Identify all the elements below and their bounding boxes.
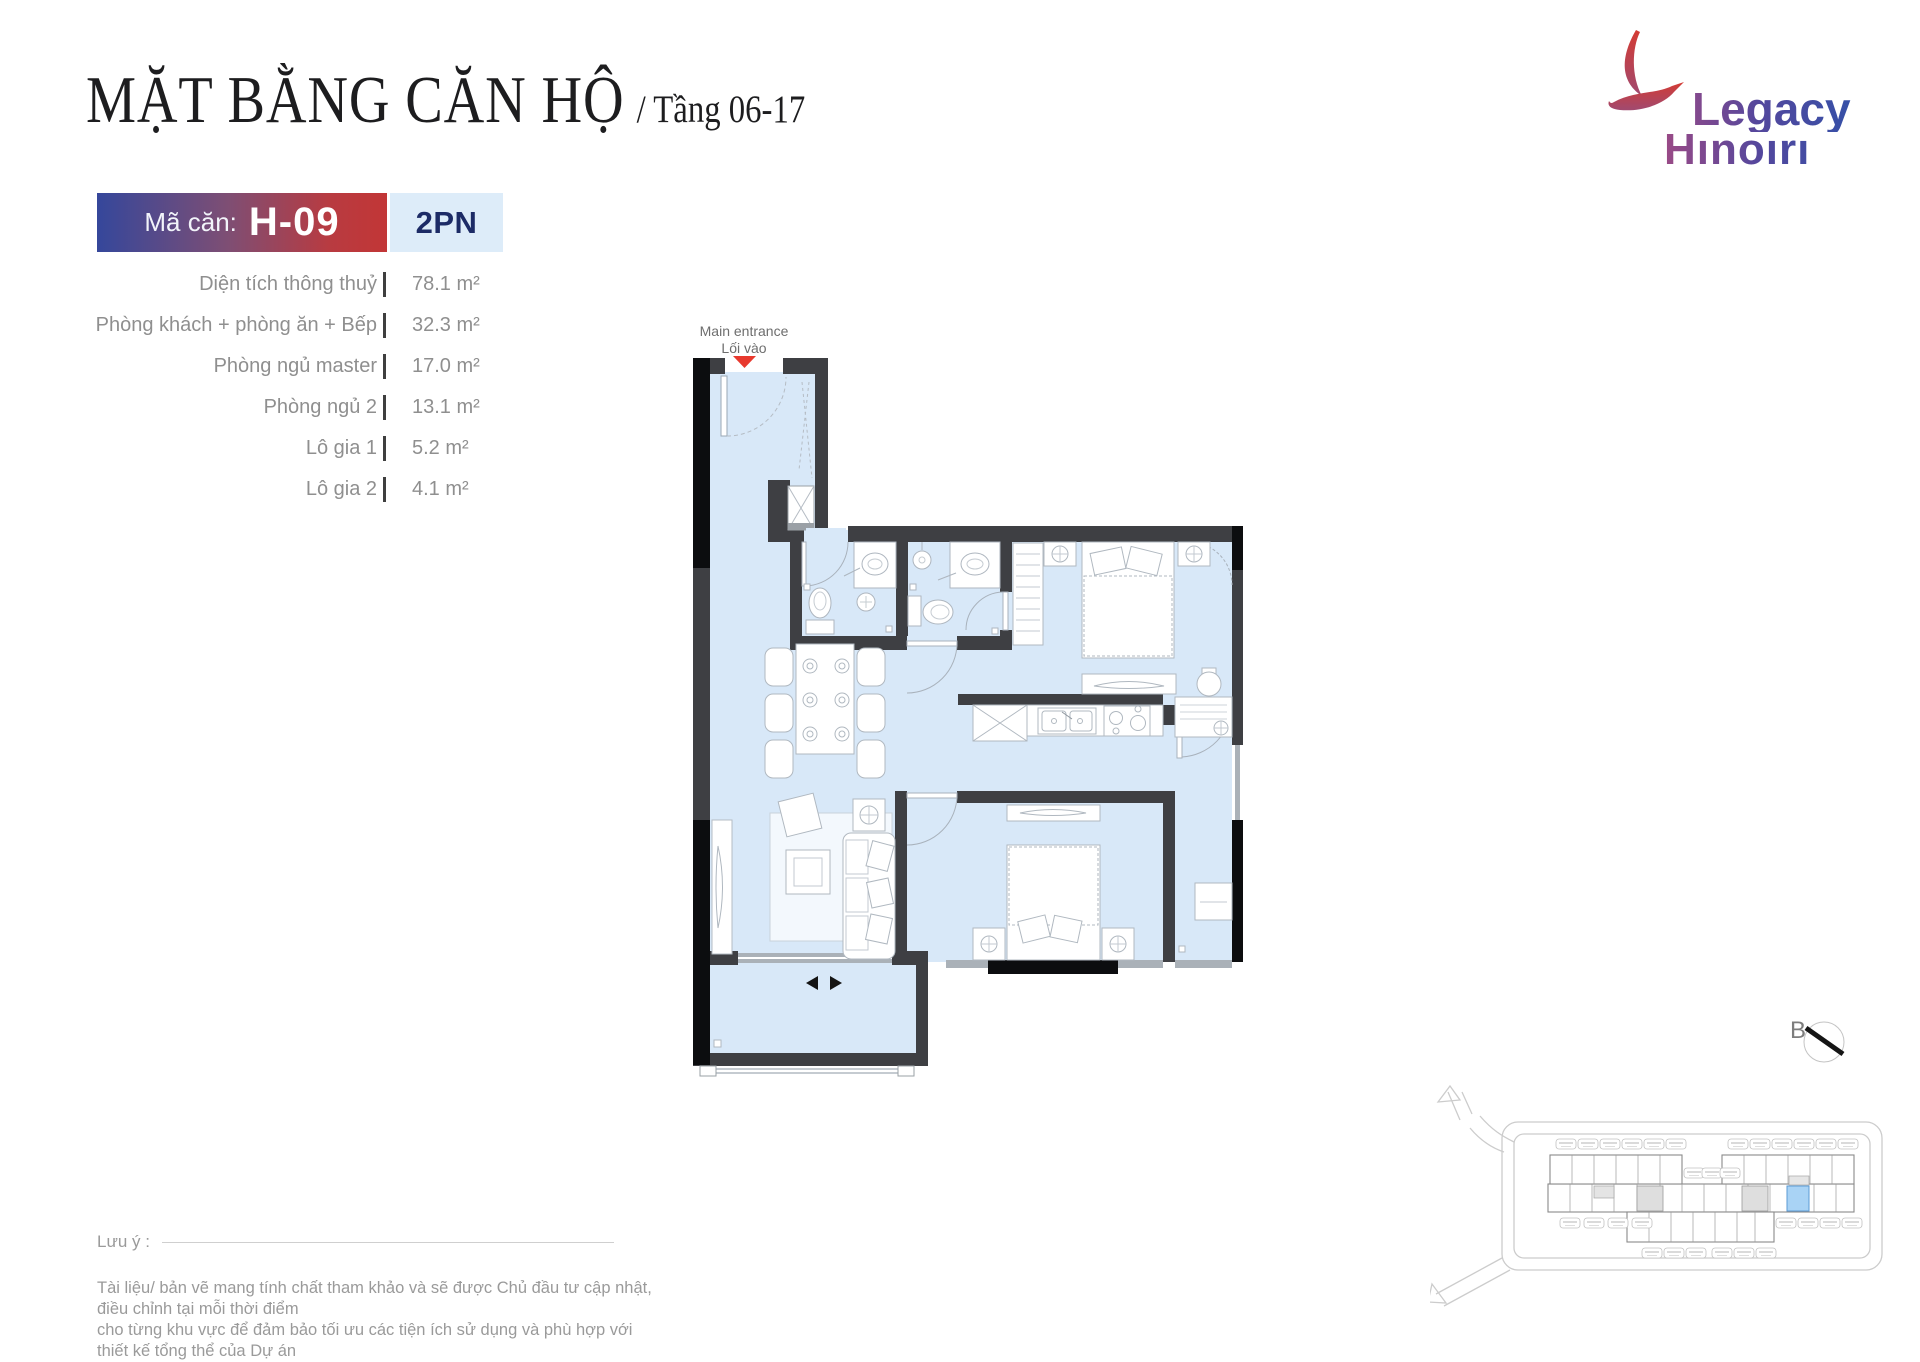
technical-shaft [788, 486, 814, 530]
highlighted-unit [1787, 1186, 1809, 1211]
spec-label: Phòng khách + phòng ăn + Bếp [0, 314, 377, 337]
spec-value: 5.2 m² [386, 437, 469, 460]
spec-value: 78.1 m² [386, 273, 480, 296]
title-text: MẶT BẰNG CĂN HỘ [86, 63, 624, 137]
spec-value: 17.0 m² [386, 355, 480, 378]
compass-needle [1806, 1028, 1843, 1054]
unit-type-badge: 2PN [390, 193, 503, 252]
spec-label: Lô gia 2 [0, 478, 377, 501]
unit-code-value: H-09 [249, 200, 340, 245]
spec-row: Lô gia 24.1 m² [0, 469, 520, 510]
spec-value: 4.1 m² [386, 478, 469, 501]
disclaimer: Tài liệu/ bản vẽ mang tính chất tham khả… [97, 1278, 657, 1362]
spec-row: Phòng khách + phòng ăn + Bếp32.3 m² [0, 305, 520, 346]
note-divider-line [162, 1242, 614, 1243]
entrance-label-vi: Lối vào [721, 340, 766, 356]
floor-plan-page: { "header": { "title": "MẶT BẰNG CĂN HỘ"… [0, 0, 1920, 1357]
unit-badge: Mã căn: H-09 2PN [97, 193, 503, 252]
spec-row: Phòng ngủ 213.1 m² [0, 387, 520, 428]
disclaimer-line2: cho từng khu vực để đảm bảo tối ưu các t… [97, 1320, 657, 1362]
spec-label: Lô gia 1 [0, 437, 377, 460]
title-subtitle: / Tầng 06-17 [637, 88, 806, 131]
unit-code-badge: Mã căn: H-09 [97, 193, 387, 252]
compass: B [1790, 1017, 1844, 1062]
disclaimer-line1: Tài liệu/ bản vẽ mang tính chất tham khả… [97, 1278, 657, 1320]
spec-label: Phòng ngủ 2 [0, 396, 377, 419]
unit-code-label: Mã căn: [144, 207, 237, 238]
spec-row: Lô gia 15.2 m² [0, 428, 520, 469]
spec-label: Diện tích thông thuỷ [0, 273, 377, 296]
note-label: Lưu ý : [97, 1232, 150, 1252]
spec-row: Diện tích thông thuỷ78.1 m² [0, 264, 520, 305]
entrance-label-en: Main entrance [700, 323, 789, 339]
logo: Legacy Hınoırı [1660, 86, 1910, 172]
entrance-marker-icon [733, 356, 756, 368]
spec-list: Diện tích thông thuỷ78.1 m² Phòng khách … [0, 264, 520, 510]
spec-row: Phòng ngủ master17.0 m² [0, 346, 520, 387]
spec-value: 13.1 m² [386, 396, 480, 419]
overview-panel: B [1430, 1005, 1920, 1335]
logo-line2: Hınoırı [1660, 128, 1910, 172]
page-title: MẶT BẰNG CĂN HỘ / Tầng 06-17 [86, 62, 805, 139]
spec-label: Phòng ngủ master [0, 355, 377, 378]
spec-value: 32.3 m² [386, 314, 480, 337]
floor-plan: Main entrance Lối vào [660, 310, 1260, 1090]
footer: Lưu ý : Tài liệu/ bản vẽ mang tính chất … [97, 1232, 657, 1362]
